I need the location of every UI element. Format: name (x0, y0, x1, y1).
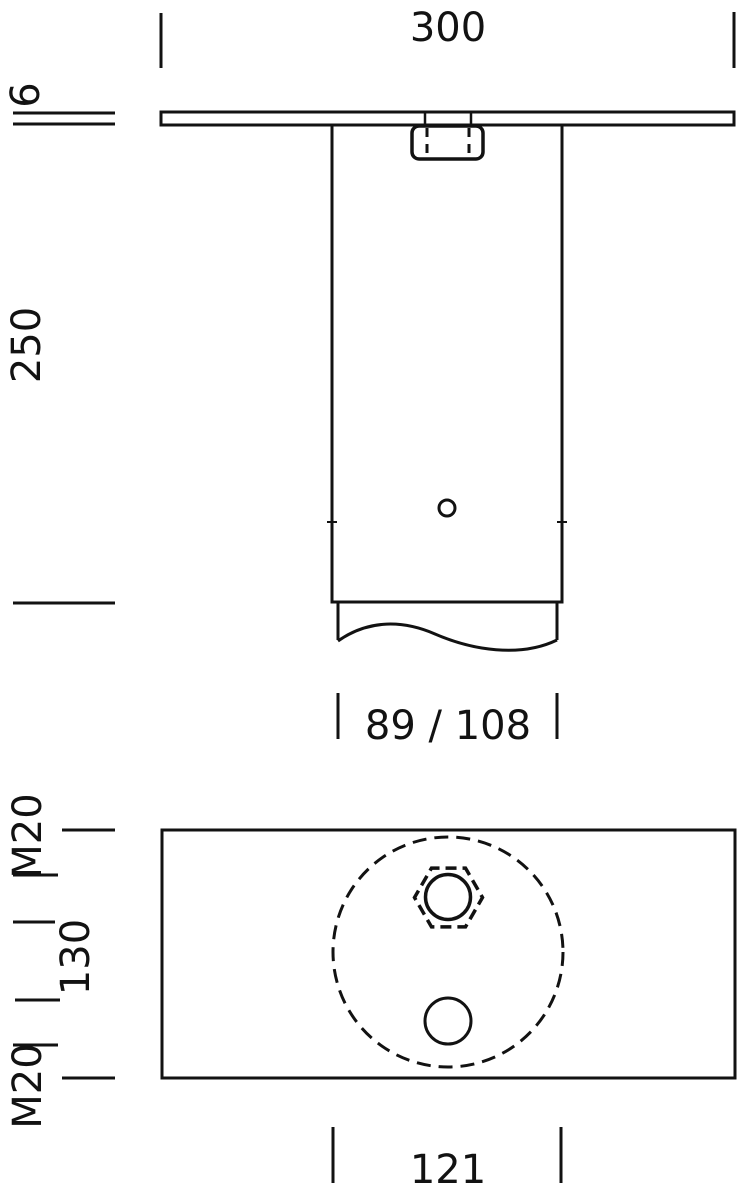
dim-label-hole-spacing: 130 (53, 919, 99, 995)
dim-label-tube-diameters: 89 / 108 (365, 703, 531, 749)
tube-break-section (338, 602, 557, 650)
thread-hole-bottom (425, 998, 471, 1044)
drawing-canvas: 300 6 250 (0, 0, 744, 1200)
dim-label-plate-width: 300 (410, 5, 486, 51)
dim-label-post-height: 250 (4, 307, 50, 383)
dim-label-circle-diameter: 121 (410, 1147, 486, 1193)
dim-plate-thickness (13, 113, 115, 124)
base-plate-side (161, 112, 734, 125)
dim-label-thread-bottom: M20 (5, 1043, 51, 1128)
post-tube-outline (332, 125, 562, 602)
weep-hole (439, 500, 455, 516)
dim-label-plate-thickness: 6 (3, 82, 49, 107)
break-wave-line (338, 624, 557, 650)
technical-drawing: 300 6 250 (0, 0, 744, 1200)
thread-hole-top (426, 875, 471, 920)
dim-label-thread-top: M20 (5, 793, 51, 878)
hex-nut-side (412, 126, 483, 159)
